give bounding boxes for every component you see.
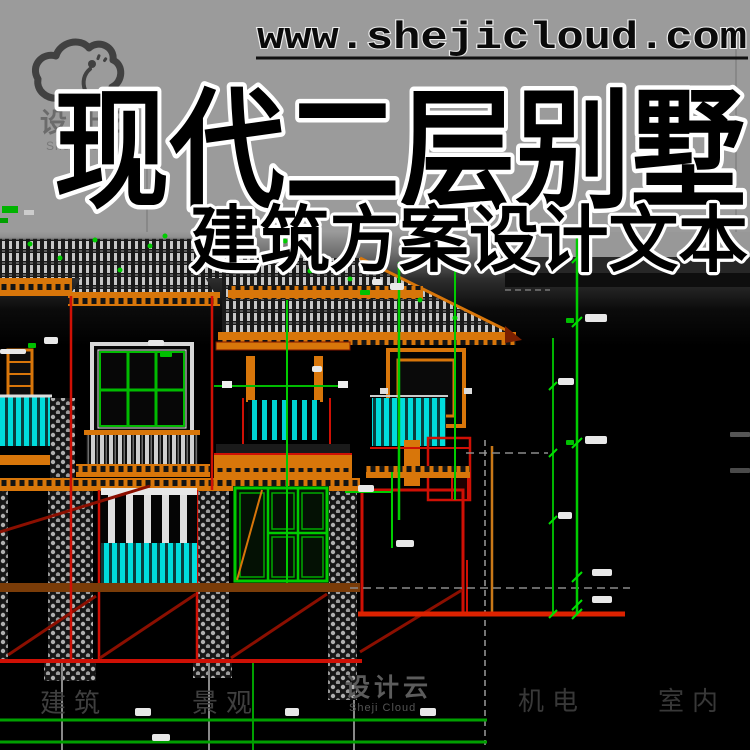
site-url: www.shejicloud.com [257, 17, 747, 60]
banner-subtitle: 建筑方案设计文本 [190, 201, 748, 281]
product-image: 建筑 景观 机电 室内 设计云 Sheji Cloud 设计云 ShejiClo… [0, 0, 750, 750]
overlay-text-layer: 设计云 ShejiCloud www.shejicloud.com 现代二层别墅… [0, 0, 750, 750]
